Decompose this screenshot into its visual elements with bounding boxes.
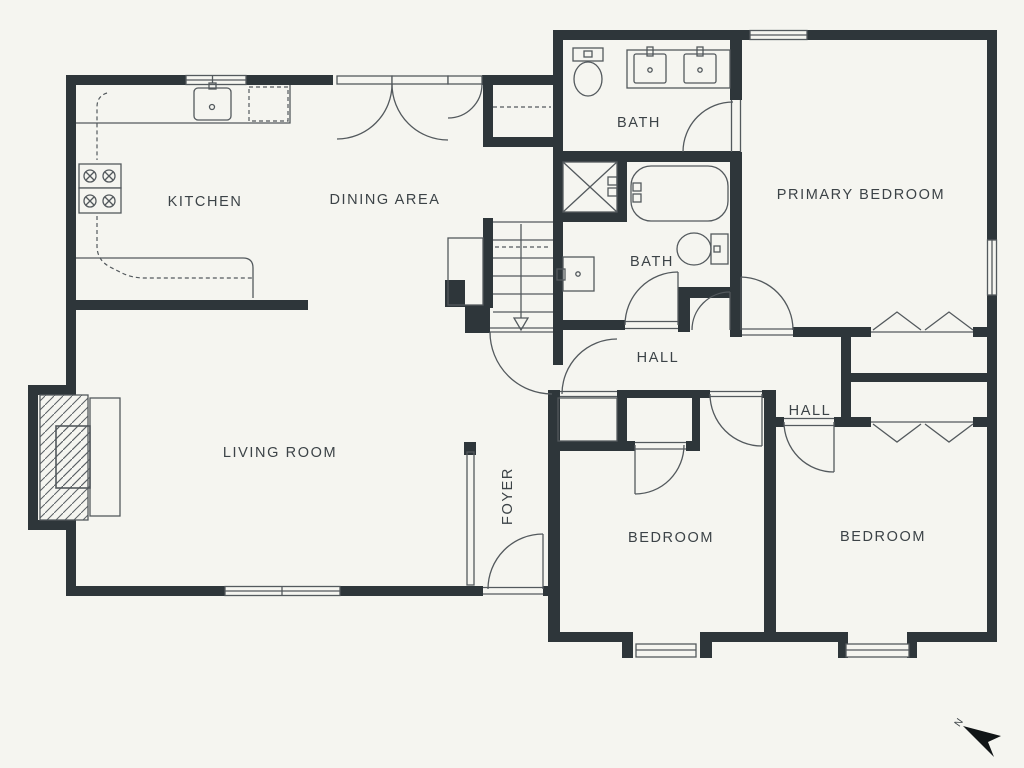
floor-plan-canvas: KITCHEN DINING AREA BATH PRIMARY BEDROOM… [0, 0, 1024, 768]
bedroom-left-door [710, 392, 762, 447]
bathtub-icon [631, 166, 728, 221]
vanity-sinks-icon [627, 47, 730, 88]
toilet-upper-icon [573, 48, 603, 96]
stair-bottom-door [490, 328, 553, 394]
bedroom-left-closet-door [635, 443, 686, 495]
primary-right-window [988, 240, 997, 295]
hall-closet-door [560, 339, 617, 397]
primary-bedroom-door [741, 277, 793, 335]
room-label-bedroom-right: BEDROOM [840, 529, 926, 545]
bedroom-right-closet-bifold [871, 422, 973, 442]
walls [28, 30, 997, 658]
north-arrow-icon: N [953, 717, 1001, 757]
stove-icon [79, 164, 121, 213]
dining-double-door [337, 76, 448, 140]
foyer-entry-door [483, 534, 543, 594]
room-label-hall-main: HALL [637, 350, 680, 366]
room-label-dining-area: DINING AREA [329, 192, 440, 208]
windows [186, 31, 997, 658]
toilet-middle-icon [677, 233, 728, 265]
bedroom-right-window [846, 632, 909, 657]
room-label-bath-upper: BATH [617, 115, 661, 131]
dishwasher-icon [249, 87, 288, 121]
dining-side-door [448, 76, 482, 118]
room-label-primary-bedroom: PRIMARY BEDROOM [777, 187, 946, 203]
bedroom-right-door [784, 419, 834, 473]
shower-icon [563, 162, 617, 212]
stairs [448, 222, 553, 330]
bedroom-left-window [633, 632, 700, 657]
room-label-bath-middle: BATH [630, 254, 674, 270]
room-label-foyer: FOYER [500, 467, 516, 525]
hearth [90, 398, 120, 516]
room-label-bedroom-left: BEDROOM [628, 530, 714, 546]
primary-closet-bifold [871, 312, 973, 332]
hall-closet-niche [558, 398, 617, 441]
ensuite-bath-door [683, 100, 741, 152]
room-label-hall-right: HALL [789, 403, 832, 419]
bath-sink-icon [557, 257, 594, 291]
north-label: N [953, 717, 966, 729]
living-room-window [225, 587, 340, 596]
fireplace-icon [40, 395, 120, 520]
room-label-living-room: LIVING ROOM [223, 445, 337, 461]
foyer-railing [467, 452, 474, 585]
bath-middle-door [625, 272, 678, 329]
room-label-kitchen: KITCHEN [168, 194, 243, 210]
floor-plan-drawing: KITCHEN DINING AREA BATH PRIMARY BEDROOM… [0, 0, 1024, 768]
primary-top-window [750, 31, 807, 40]
